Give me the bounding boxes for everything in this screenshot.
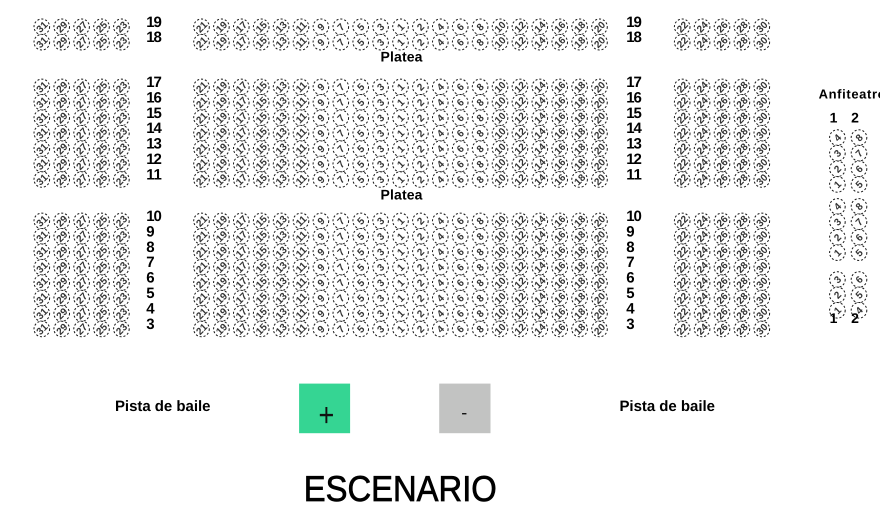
svg-text:7: 7 xyxy=(146,254,154,271)
svg-text:9: 9 xyxy=(626,223,634,240)
svg-text:3: 3 xyxy=(146,316,154,333)
svg-text:2: 2 xyxy=(851,109,859,125)
svg-text:14: 14 xyxy=(626,120,642,137)
svg-text:16: 16 xyxy=(146,89,162,106)
svg-text:18: 18 xyxy=(626,29,642,46)
svg-text:Platea: Platea xyxy=(381,186,423,202)
svg-text:4: 4 xyxy=(626,301,635,318)
svg-text:Pista de baile: Pista de baile xyxy=(619,398,715,415)
svg-text:1: 1 xyxy=(830,109,838,125)
svg-text:Pista de baile: Pista de baile xyxy=(115,398,211,415)
svg-text:14: 14 xyxy=(146,120,162,137)
svg-text:3: 3 xyxy=(626,316,634,333)
svg-text:7: 7 xyxy=(626,254,634,271)
svg-text:4: 4 xyxy=(146,301,155,318)
svg-text:16: 16 xyxy=(626,89,642,106)
svg-text:ESCENARIO: ESCENARIO xyxy=(304,468,497,509)
svg-text:11: 11 xyxy=(626,167,642,184)
svg-text:2: 2 xyxy=(851,310,859,326)
svg-text:Anfiteatro: Anfiteatro xyxy=(819,86,880,101)
svg-text:-: - xyxy=(461,402,467,422)
svg-text:11: 11 xyxy=(146,167,162,184)
svg-text:18: 18 xyxy=(146,29,162,46)
svg-text:1: 1 xyxy=(830,310,838,326)
svg-text:Platea: Platea xyxy=(381,48,423,64)
svg-text:9: 9 xyxy=(146,223,154,240)
svg-text:+: + xyxy=(319,396,335,433)
